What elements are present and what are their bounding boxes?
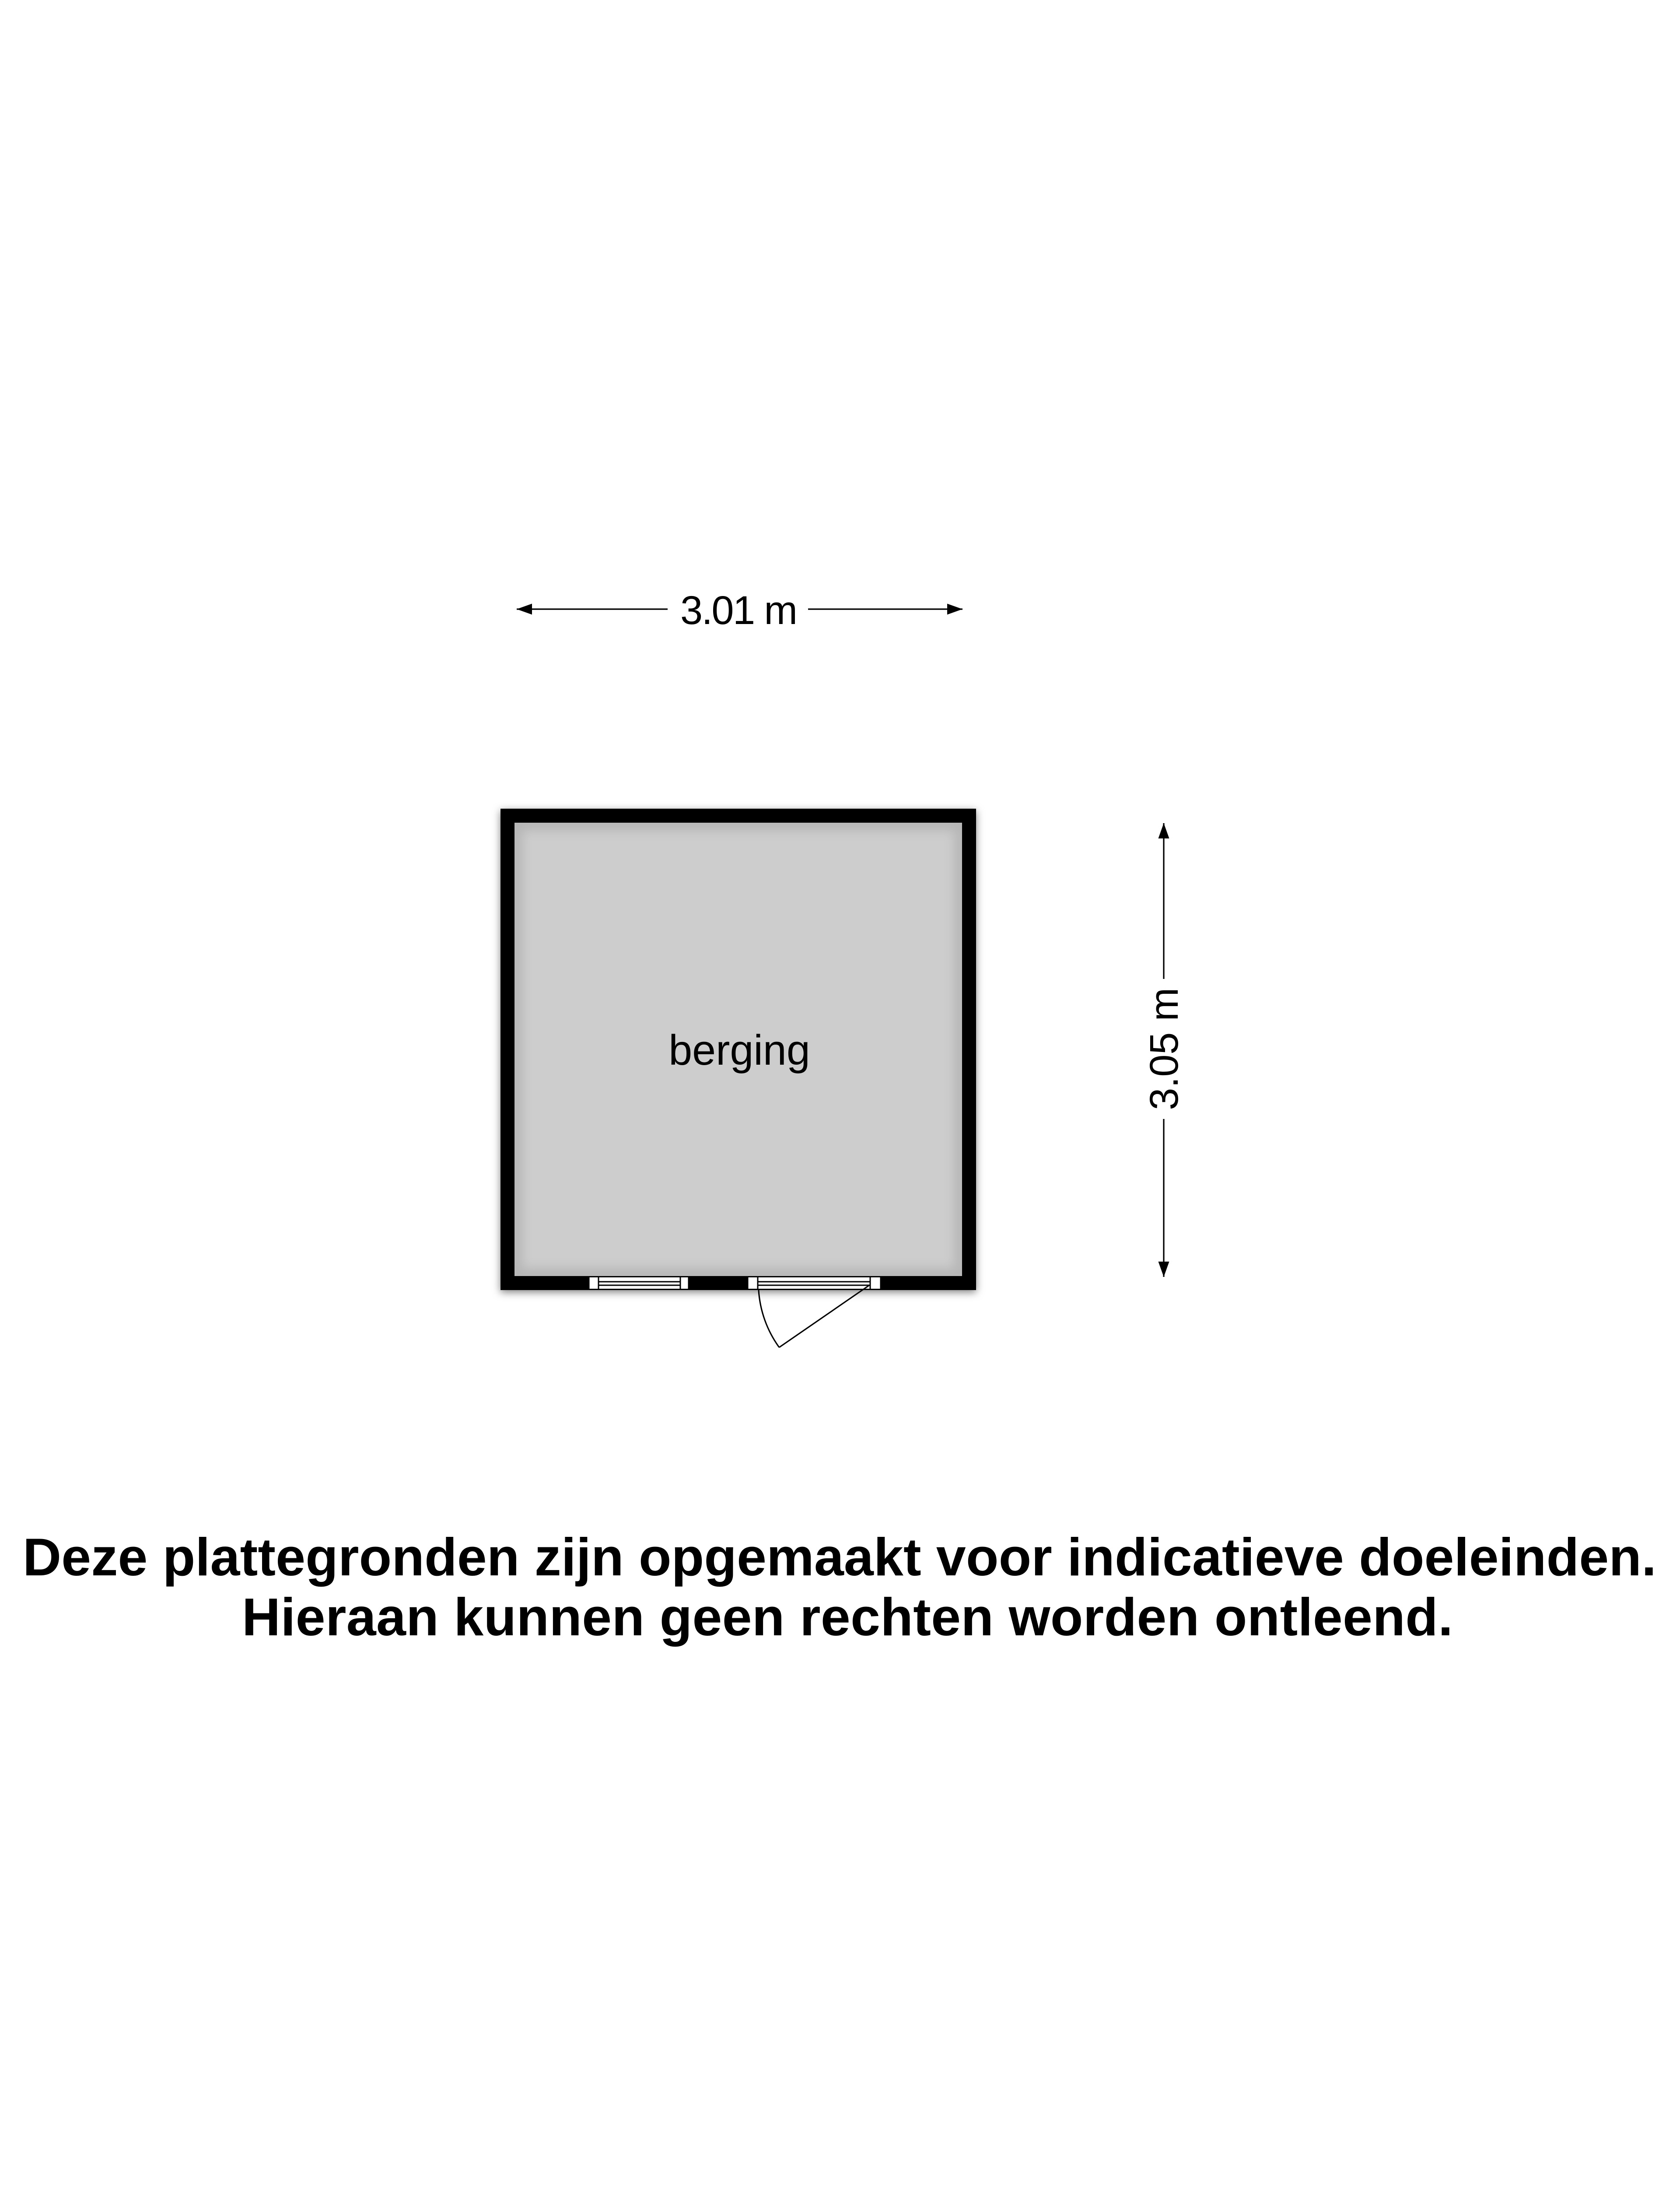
svg-text:3.01 m: 3.01 m: [680, 588, 798, 633]
svg-text:berging: berging: [668, 1026, 810, 1074]
svg-text:Hieraan kunnen geen rechten wo: Hieraan kunnen geen rechten worden ontle…: [242, 1587, 1453, 1647]
svg-text:Deze plattegronden zijn opgema: Deze plattegronden zijn opgemaakt voor i…: [23, 1527, 1656, 1587]
svg-text:3.05 m: 3.05 m: [1142, 988, 1186, 1110]
